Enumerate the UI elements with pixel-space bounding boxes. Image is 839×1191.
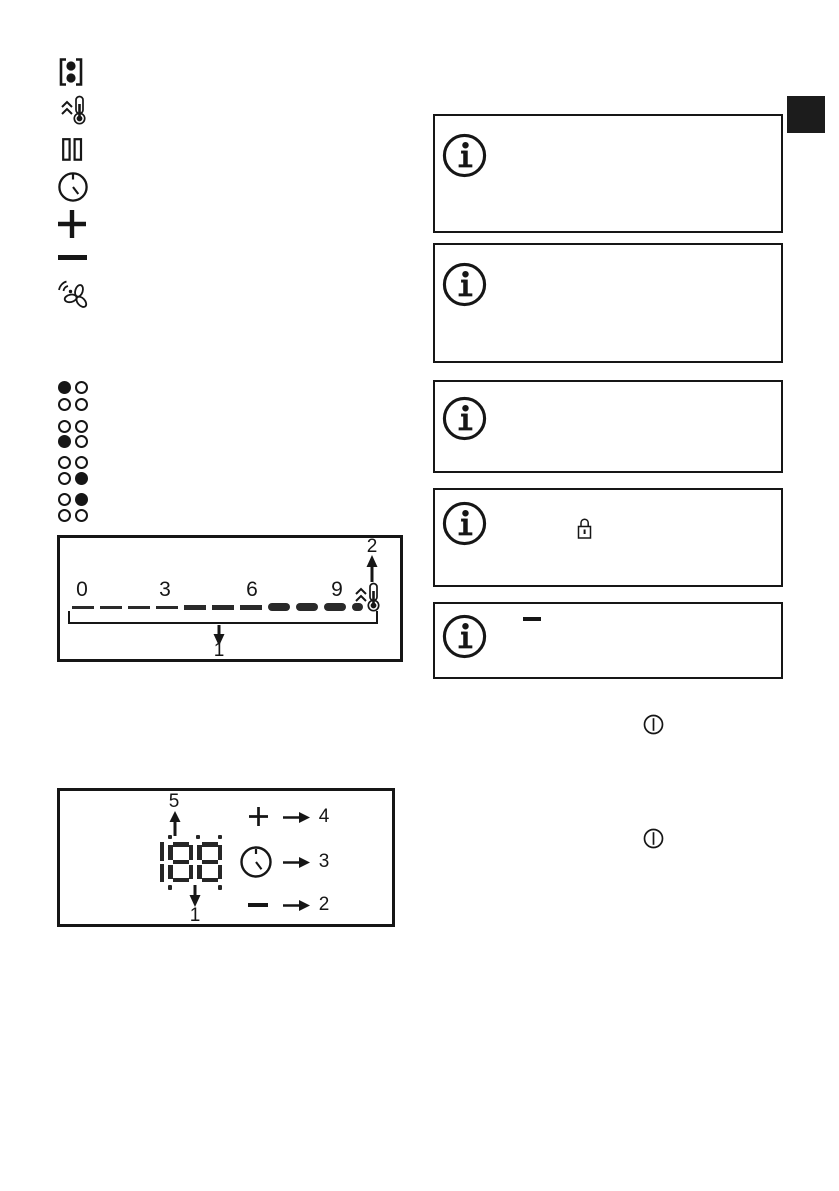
display-segment — [173, 842, 189, 847]
info-box-5 — [433, 602, 783, 679]
indicator-dot-off — [75, 435, 88, 448]
indicator-dot-off — [58, 493, 71, 506]
callout-1: 1 — [185, 907, 205, 924]
display-segment — [218, 845, 223, 860]
info-icon — [441, 395, 488, 442]
display-segment — [160, 842, 165, 861]
bridge-function-icon — [57, 57, 85, 87]
power-level-segment-thick — [268, 603, 290, 611]
power-level-segment-thin — [156, 606, 178, 609]
arrow-right-icon — [283, 811, 310, 824]
indicator-dot-off — [75, 381, 88, 394]
clock-icon — [239, 845, 273, 879]
arrow-up-icon — [169, 811, 181, 837]
arrow-down-icon — [189, 885, 201, 907]
indicator-dot-on — [75, 472, 88, 485]
indicator-dot-grid — [58, 381, 90, 523]
display-decimal-dot — [218, 885, 223, 890]
display-segment — [160, 864, 165, 883]
seven-segment-display — [159, 842, 223, 882]
power-on-off-icon — [643, 828, 664, 849]
display-segment — [202, 878, 218, 883]
indicator-dot-off — [58, 420, 71, 433]
indicator-dot-off — [58, 472, 71, 485]
power-on-off-icon — [643, 714, 664, 735]
minus-icon — [248, 903, 268, 907]
arrow-right-icon — [283, 899, 310, 912]
indicator-dot-off — [75, 456, 88, 469]
power-level-segment-thin — [128, 606, 150, 609]
callout-4: 4 — [314, 808, 334, 825]
manual-page: 0 3 6 9 2 — [0, 0, 839, 1191]
heat-up-thermometer-icon — [57, 95, 89, 125]
display-segment — [189, 845, 194, 860]
display-segment — [189, 865, 194, 880]
power-level-segment-thin — [100, 606, 122, 609]
info-icon — [441, 261, 488, 308]
display-decimal-dot — [168, 835, 173, 840]
fan-icon — [57, 279, 89, 309]
display-decimal-dot — [168, 885, 173, 890]
power-level-scale-figure: 0 3 6 9 2 — [57, 535, 403, 662]
callout-3: 3 — [314, 853, 334, 870]
arrow-right-icon — [283, 856, 310, 869]
clock-icon — [57, 171, 89, 203]
callout-5: 5 — [164, 793, 184, 810]
display-decimal-dot — [196, 835, 201, 840]
indicator-dot-off — [75, 420, 88, 433]
pause-icon — [62, 138, 83, 161]
lock-icon — [577, 517, 592, 540]
power-level-segment-thick — [296, 603, 318, 611]
minus-icon — [58, 255, 87, 260]
indicator-dot-off — [75, 509, 88, 522]
display-segment — [168, 845, 173, 860]
callout-2: 2 — [363, 538, 381, 555]
display-decimal-dot — [218, 835, 223, 840]
range-bracket — [68, 611, 378, 624]
display-segment — [202, 842, 218, 847]
callout-2: 2 — [314, 896, 334, 913]
indicator-dot-on — [75, 493, 88, 506]
display-segment — [218, 865, 223, 880]
heat-up-thermometer-icon — [354, 582, 380, 612]
power-level-segment-thick — [324, 603, 346, 611]
power-level-segment-medium — [240, 605, 262, 610]
indicator-dot-on — [58, 381, 71, 394]
info-box-3 — [433, 380, 783, 473]
info-box-4 — [433, 488, 783, 587]
display-segment — [173, 878, 189, 883]
display-segment — [173, 860, 189, 864]
callout-1: 1 — [209, 642, 229, 659]
indicator-dot-off — [75, 398, 88, 411]
power-level-segment-medium — [184, 605, 206, 610]
power-level-segment-medium — [212, 605, 234, 610]
display-segment — [197, 845, 202, 860]
indicator-dot-off — [58, 398, 71, 411]
info-box-2 — [433, 243, 783, 363]
timer-display-figure: 5 1 — [57, 788, 395, 927]
minus-dash-icon — [523, 617, 541, 621]
page-edge-tab — [787, 96, 825, 133]
info-box-1 — [433, 114, 783, 233]
indicator-dot-on — [58, 435, 71, 448]
info-icon — [441, 613, 488, 660]
plus-icon — [248, 806, 269, 827]
power-level-segment-thin — [72, 606, 94, 609]
display-segment — [202, 860, 218, 864]
indicator-dot-off — [58, 456, 71, 469]
arrow-up-icon — [366, 555, 378, 583]
info-icon — [441, 500, 488, 547]
plus-icon — [56, 208, 88, 240]
indicator-dot-off — [58, 509, 71, 522]
power-level-segments — [72, 598, 388, 612]
info-icon — [441, 132, 488, 179]
